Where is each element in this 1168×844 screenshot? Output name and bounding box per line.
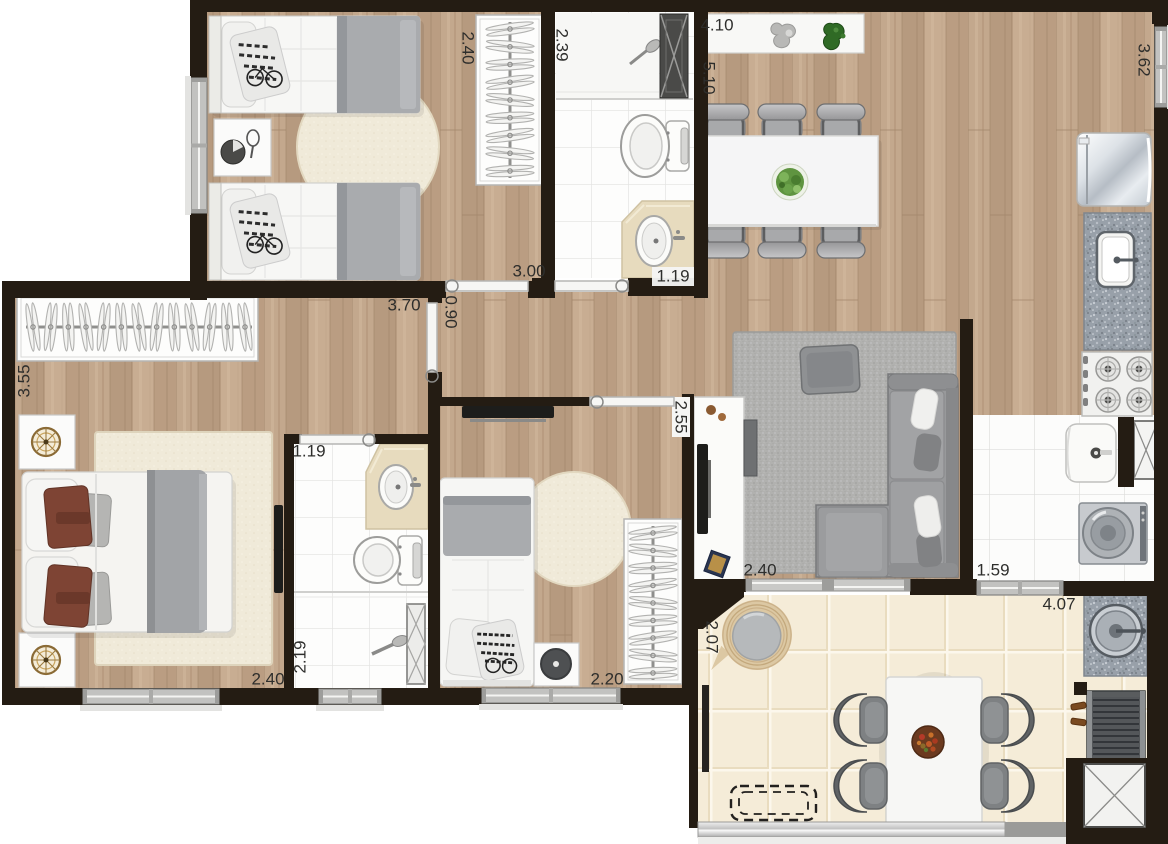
svg-text:2.19: 2.19 [290, 640, 309, 673]
svg-text:5.10: 5.10 [700, 61, 719, 94]
svg-text:0.90: 0.90 [442, 295, 461, 328]
svg-text:3.62: 3.62 [1135, 43, 1154, 76]
svg-text:2.39: 2.39 [553, 28, 572, 61]
svg-text:4.07: 4.07 [1042, 594, 1075, 613]
svg-text:3.00: 3.00 [512, 261, 545, 280]
svg-text:2.40: 2.40 [251, 669, 284, 688]
svg-text:2.55: 2.55 [672, 400, 691, 433]
svg-text:3.70: 3.70 [387, 295, 420, 314]
svg-text:1.59: 1.59 [976, 560, 1009, 579]
svg-text:1.19: 1.19 [656, 266, 689, 285]
svg-text:2.40: 2.40 [743, 560, 776, 579]
svg-text:2.20: 2.20 [590, 669, 623, 688]
svg-text:2.40: 2.40 [459, 31, 478, 64]
svg-text:2.07: 2.07 [703, 620, 722, 653]
svg-text:1.19: 1.19 [292, 441, 325, 460]
svg-text:3.55: 3.55 [14, 364, 33, 397]
svg-text:4.10: 4.10 [700, 15, 733, 34]
